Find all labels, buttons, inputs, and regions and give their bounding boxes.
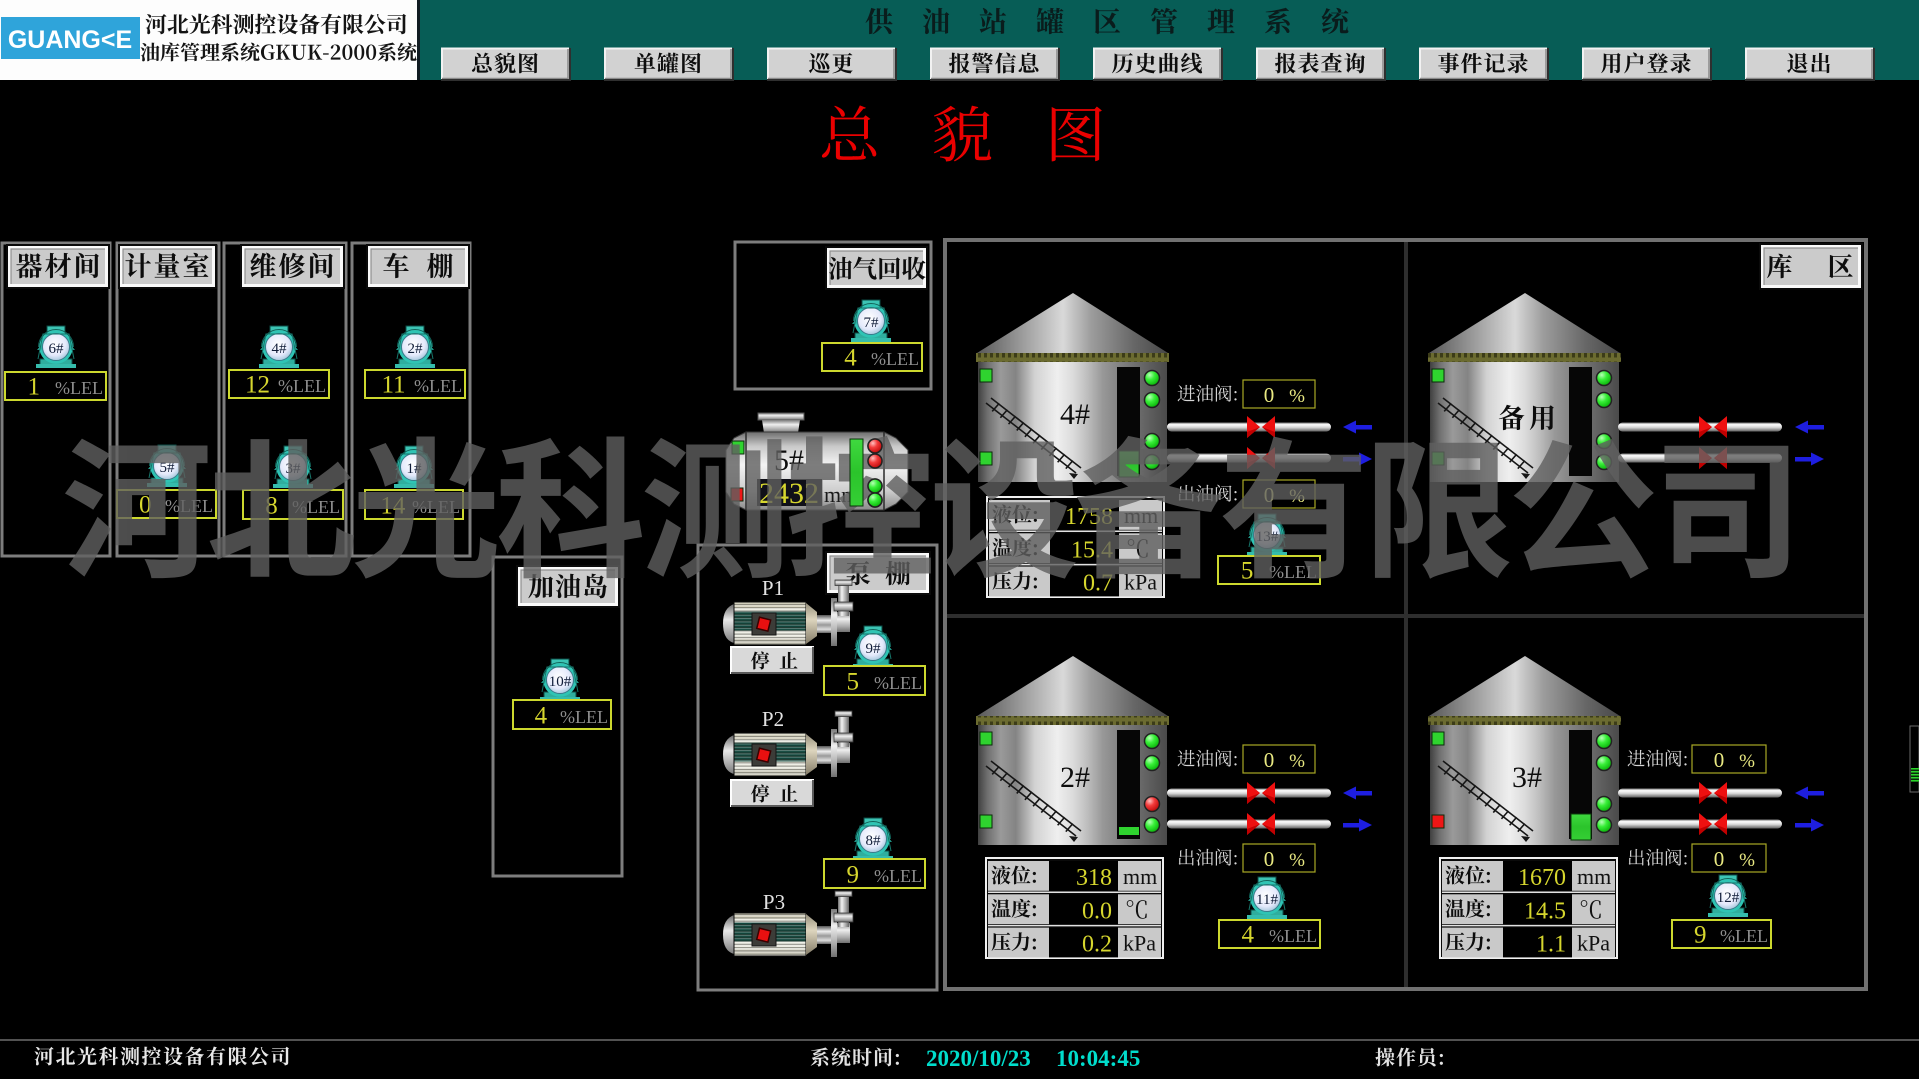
svg-text:%LEL: %LEL bbox=[278, 376, 326, 396]
svg-text:P2: P2 bbox=[762, 707, 784, 731]
svg-text:9#: 9# bbox=[866, 641, 882, 657]
svg-text:5: 5 bbox=[1241, 558, 1254, 585]
svg-text:4: 4 bbox=[535, 703, 548, 730]
svg-text:%: % bbox=[1289, 850, 1305, 871]
svg-text:%LEL: %LEL bbox=[874, 673, 922, 693]
svg-text:11#: 11# bbox=[1256, 892, 1278, 908]
svg-text:4#: 4# bbox=[272, 341, 288, 357]
svg-text:%LEL: %LEL bbox=[414, 376, 462, 396]
svg-text:4: 4 bbox=[1242, 922, 1255, 949]
svg-text:0.0: 0.0 bbox=[1082, 898, 1112, 924]
svg-text:%LEL: %LEL bbox=[874, 866, 922, 886]
svg-text:0: 0 bbox=[1264, 847, 1275, 871]
svg-text:GUANG<E: GUANG<E bbox=[8, 26, 132, 54]
svg-text:mm: mm bbox=[1577, 864, 1611, 889]
svg-text:mm: mm bbox=[1123, 864, 1157, 889]
svg-text:14.5: 14.5 bbox=[1524, 898, 1566, 924]
svg-text:9: 9 bbox=[847, 862, 860, 889]
svg-text:P1: P1 bbox=[762, 576, 784, 600]
svg-text:1.1: 1.1 bbox=[1536, 932, 1566, 958]
svg-text:%LEL: %LEL bbox=[560, 707, 608, 727]
svg-text:12#: 12# bbox=[1717, 890, 1740, 906]
svg-text:%: % bbox=[1739, 850, 1755, 871]
svg-text:%: % bbox=[1289, 751, 1305, 772]
svg-text:3#: 3# bbox=[1512, 761, 1542, 794]
svg-text:2#: 2# bbox=[1060, 761, 1090, 794]
svg-text:1670: 1670 bbox=[1518, 865, 1566, 891]
svg-text:kPa: kPa bbox=[1577, 931, 1610, 956]
svg-text:%: % bbox=[1289, 386, 1305, 407]
svg-text:0: 0 bbox=[1264, 748, 1275, 772]
svg-text:10#: 10# bbox=[549, 674, 572, 690]
svg-text:2020/10/23: 2020/10/23 bbox=[926, 1046, 1031, 1071]
svg-text:6#: 6# bbox=[49, 341, 65, 357]
svg-text:0: 0 bbox=[1714, 847, 1725, 871]
svg-text:7#: 7# bbox=[864, 315, 880, 331]
svg-text:%LEL: %LEL bbox=[1720, 926, 1768, 946]
svg-text:12: 12 bbox=[245, 372, 270, 399]
svg-text:318: 318 bbox=[1076, 865, 1112, 891]
svg-text:4: 4 bbox=[844, 345, 857, 372]
svg-text:11: 11 bbox=[381, 372, 405, 399]
svg-text:%LEL: %LEL bbox=[55, 378, 103, 398]
svg-text:4#: 4# bbox=[1060, 398, 1090, 431]
svg-text:%LEL: %LEL bbox=[1269, 926, 1317, 946]
svg-text:%LEL: %LEL bbox=[871, 349, 919, 369]
svg-text:8#: 8# bbox=[866, 833, 882, 849]
svg-text:10:04:45: 10:04:45 bbox=[1056, 1046, 1140, 1071]
svg-text:0: 0 bbox=[1714, 748, 1725, 772]
svg-text:0: 0 bbox=[1264, 383, 1275, 407]
svg-text:0.2: 0.2 bbox=[1082, 932, 1112, 958]
svg-text:1: 1 bbox=[28, 374, 41, 401]
svg-text:P3: P3 bbox=[763, 890, 785, 914]
svg-text:5: 5 bbox=[847, 669, 860, 696]
svg-text:kPa: kPa bbox=[1123, 931, 1156, 956]
svg-text:9: 9 bbox=[1694, 922, 1707, 949]
svg-text:2#: 2# bbox=[408, 341, 424, 357]
svg-text:%: % bbox=[1739, 751, 1755, 772]
